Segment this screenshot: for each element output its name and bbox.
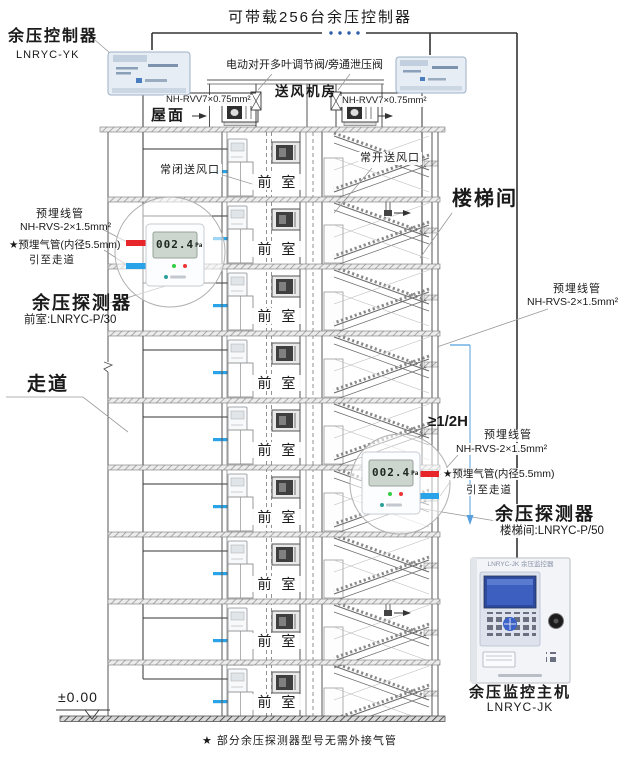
cable-left-label: NH-RVV7×0.75mm² bbox=[164, 95, 253, 106]
right-conduit-spec: NH-RVS-2×1.5mm² bbox=[454, 443, 549, 455]
host-model-label: LNRYC-JK bbox=[455, 701, 585, 715]
left-detector-name: 余压探测器 bbox=[32, 293, 132, 314]
pressure-controller-right bbox=[396, 57, 466, 93]
ground-level-label: ±0.00 bbox=[58, 689, 98, 705]
right-air-tube-line1: ★预埋气管(内径5.5mm) bbox=[441, 468, 557, 480]
right-detector-lcd: 002.4Pa bbox=[372, 466, 418, 479]
front-room-label-4: 前 室 bbox=[252, 375, 304, 391]
right-air-tube-line2: 引至走道 bbox=[464, 484, 514, 496]
left-detector-lcd: 002.4Pa bbox=[156, 238, 202, 251]
schematic-page: 可带载256台余压控制器 余压控制器 LNRYC-YK 电动对开多叶调节阀/旁通… bbox=[0, 0, 640, 757]
stair-conduit-title: 预埋线管 bbox=[551, 283, 603, 296]
building-drawing bbox=[0, 0, 640, 757]
left-air-tube-line2: 引至走道 bbox=[29, 254, 75, 266]
right-lcd-unit: Pa bbox=[411, 470, 418, 477]
left-lcd-unit: Pa bbox=[195, 242, 202, 249]
controller-name-label: 余压控制器 bbox=[8, 28, 98, 46]
dimension-label: ≥1/2H bbox=[428, 413, 468, 430]
dimension-line bbox=[450, 345, 474, 525]
footnote: ★ 部分余压探测器型号无需外接气管 bbox=[202, 735, 397, 748]
left-air-tube-line1: ★预埋气管(内径5.5mm) bbox=[9, 239, 121, 251]
front-room-label-2: 前 室 bbox=[252, 241, 304, 257]
left-conduit-spec: NH-RVS-2×1.5mm² bbox=[20, 221, 111, 233]
front-room-label-3: 前 室 bbox=[252, 308, 304, 324]
right-detector-model: 楼梯间:LNRYC-P/50 bbox=[498, 525, 606, 538]
fan-room-label: 送风机房 bbox=[275, 84, 337, 100]
open-vent-label: 常开送风口 bbox=[358, 152, 422, 165]
cable-right-label: NH-RVV7×0.75mm² bbox=[340, 96, 429, 107]
left-lcd-value: 002.4 bbox=[156, 238, 194, 251]
left-detector-model: 前室:LNRYC-P/30 bbox=[24, 314, 116, 327]
ground-slab bbox=[60, 716, 445, 722]
host-name-label: 余压监控主机 bbox=[455, 684, 585, 701]
right-detector-name: 余压探测器 bbox=[493, 504, 597, 525]
host-panel-title: LNRYC-JK 余压监控器 bbox=[473, 561, 568, 568]
monitoring-host bbox=[471, 558, 570, 683]
closed-vent-label: 常闭送风口 bbox=[158, 164, 222, 177]
stair-conduit-spec: NH-RVS-2×1.5mm² bbox=[525, 296, 620, 308]
front-room-label-9: 前 室 bbox=[252, 694, 304, 710]
below-grade-mask bbox=[60, 722, 445, 736]
right-lcd-value: 002.4 bbox=[372, 466, 410, 479]
stairwell-label: 楼梯间 bbox=[452, 188, 518, 211]
left-conduit-title: 预埋线管 bbox=[36, 208, 84, 221]
pressure-controller-left bbox=[108, 52, 190, 95]
front-room-label-5: 前 室 bbox=[252, 442, 304, 458]
bus-continuation-dots bbox=[329, 31, 359, 34]
diagram-title: 可带载256台余压控制器 bbox=[212, 9, 428, 26]
front-room-label-8: 前 室 bbox=[252, 633, 304, 649]
roof-surface-label: 屋面 bbox=[151, 107, 185, 124]
controller-model-label: LNRYC-YK bbox=[16, 49, 79, 62]
front-room-label-6: 前 室 bbox=[252, 509, 304, 525]
corridor-label: 走道 bbox=[27, 374, 69, 396]
front-room-label-7: 前 室 bbox=[252, 576, 304, 592]
front-room-label-1: 前 室 bbox=[252, 174, 304, 190]
right-conduit-title: 预埋线管 bbox=[482, 429, 534, 442]
valve-label: 电动对开多叶调节阀/旁通泄压阀 bbox=[226, 59, 383, 72]
